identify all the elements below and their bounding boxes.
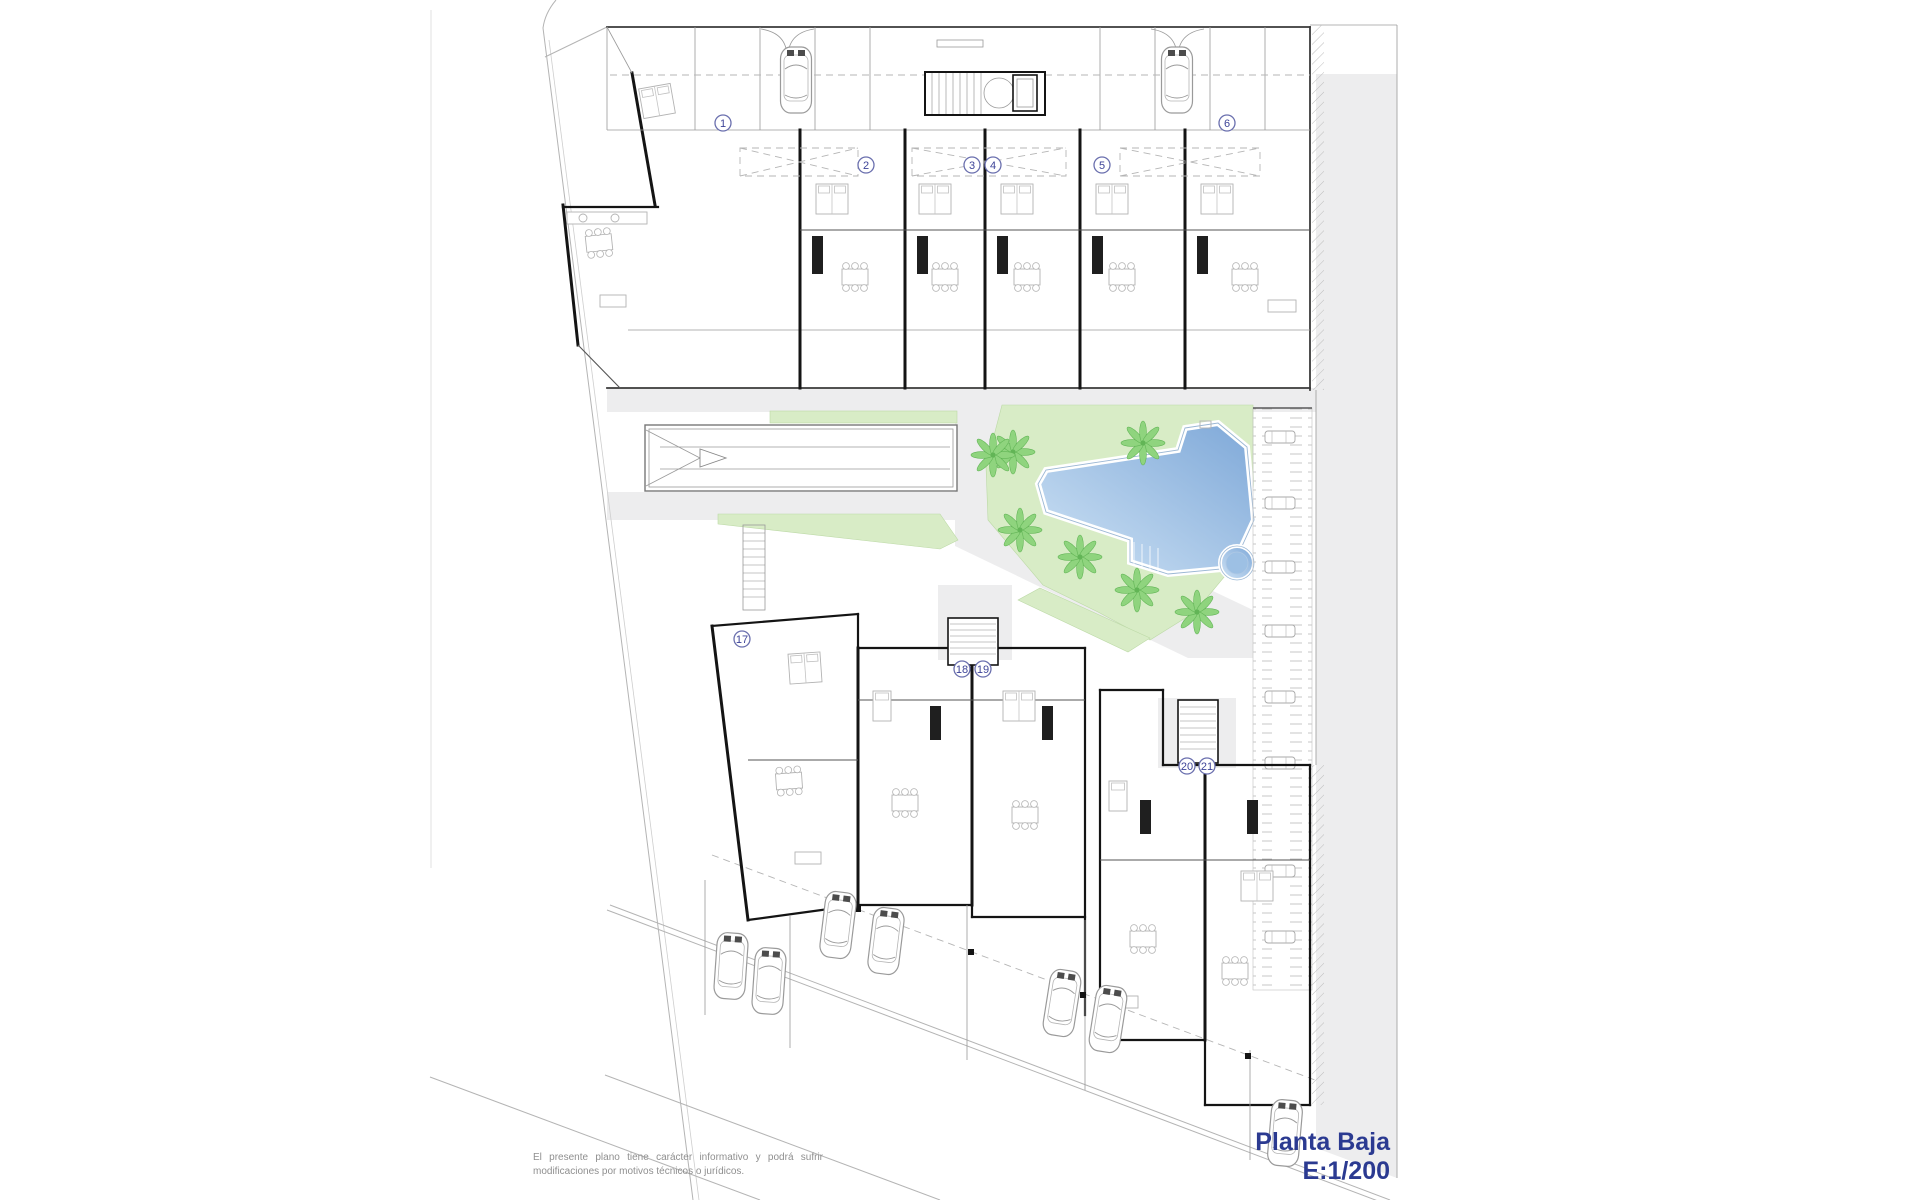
unit-marker: 17 [734, 631, 750, 647]
unit-number: 6 [1224, 118, 1230, 130]
unit-number: 19 [977, 664, 989, 676]
stair-18-19 [948, 618, 998, 665]
garage-car [781, 47, 812, 113]
unit-number: 21 [1201, 761, 1213, 773]
stair-20-21 [1178, 700, 1218, 763]
plan-title-scale: E:1/200 [1255, 1157, 1390, 1186]
disclaimer-note: El presente plano tiene carácter informa… [533, 1151, 823, 1179]
elevator [1013, 75, 1037, 111]
unit-marker: 21 [1199, 758, 1215, 774]
block-a-furniture [775, 652, 1038, 864]
unit-marker: 20 [1179, 758, 1195, 774]
unit-number: 20 [1181, 761, 1193, 773]
plan-title-name: Planta Baja [1255, 1128, 1390, 1157]
unit-marker: 18 [954, 661, 970, 677]
unit-marker: 1 [715, 115, 731, 131]
unit1-west-walls [563, 27, 658, 388]
unit-marker: 19 [975, 661, 991, 677]
unit-number: 18 [956, 664, 968, 676]
unit-number: 17 [736, 634, 748, 646]
balcony-stubs [800, 330, 1185, 388]
parked-cars [713, 890, 1303, 1167]
plan-title: Planta Baja E:1/200 [1255, 1128, 1390, 1186]
surface-parking-band [1253, 408, 1312, 990]
bath-cores [812, 236, 1208, 274]
site-plan-drawing: 1 2 3 4 5 6 17 18 19 20 21 [0, 0, 1920, 1200]
top-units-furniture [585, 83, 1296, 312]
garage-car [1162, 47, 1193, 113]
external-stair-17 [743, 525, 765, 610]
site-boundary [430, 0, 1397, 1200]
floor-plan-canvas: 1 2 3 4 5 6 17 18 19 20 21 El presente p… [0, 0, 1920, 1200]
street-curbs [430, 855, 1390, 1200]
unit-marker: 6 [1219, 115, 1235, 131]
unit-number: 2 [863, 160, 869, 172]
unit-number: 3 [969, 160, 975, 172]
driveways [705, 880, 1303, 1167]
unit-number: 1 [720, 118, 726, 130]
unit-number: 5 [1099, 160, 1105, 172]
top-apartment-block [563, 27, 1310, 390]
unit-number: 4 [990, 160, 996, 172]
stair-core [925, 40, 1045, 115]
unit-marker: 3 [964, 157, 980, 173]
unit-marker: 2 [858, 157, 874, 173]
unit-marker: 5 [1094, 157, 1110, 173]
parking-ramp [645, 425, 957, 491]
unit-marker: 4 [985, 157, 1001, 173]
